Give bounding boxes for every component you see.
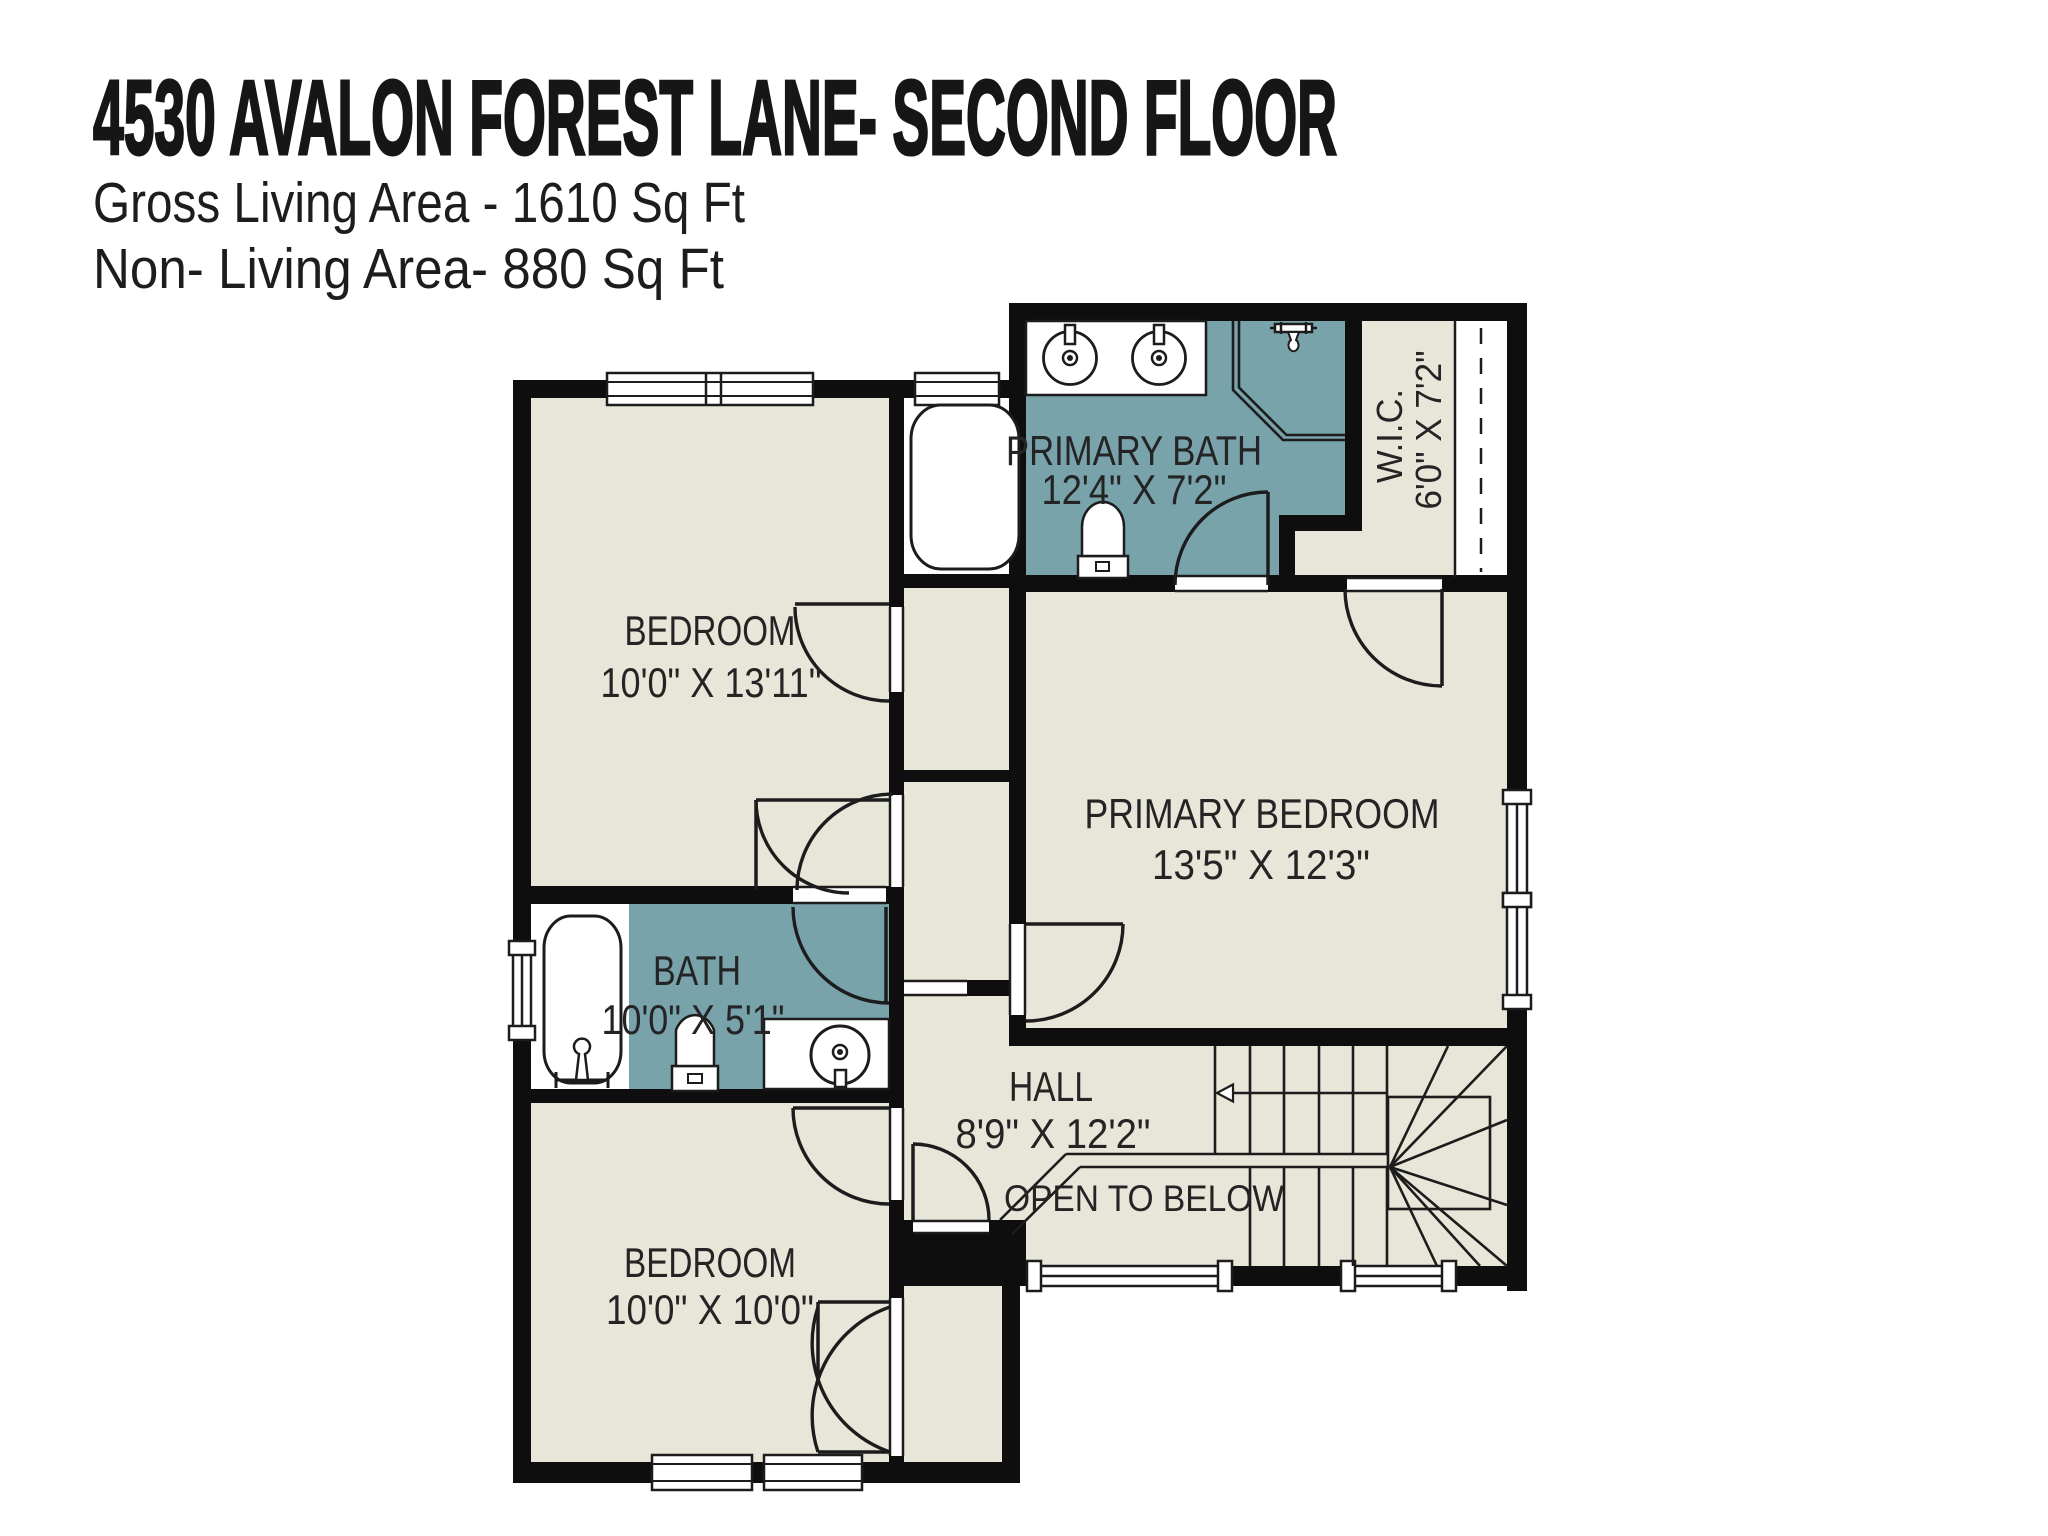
- svg-text:OPEN TO BELOW: OPEN TO BELOW: [1004, 1178, 1284, 1219]
- svg-text:12'4" X 7'2": 12'4" X 7'2": [1042, 466, 1227, 513]
- svg-text:BATH: BATH: [653, 947, 741, 994]
- svg-text:6'0" X 7'2": 6'0" X 7'2": [1408, 351, 1449, 510]
- svg-text:10'0" X 5'1": 10'0" X 5'1": [602, 996, 785, 1043]
- svg-text:13'5" X 12'3": 13'5" X 12'3": [1152, 841, 1370, 888]
- svg-text:8'9" X 12'2": 8'9" X 12'2": [956, 1110, 1151, 1157]
- svg-text:PRIMARY BEDROOM: PRIMARY BEDROOM: [1085, 790, 1440, 837]
- svg-text:W.I.C.: W.I.C.: [1369, 389, 1410, 483]
- svg-text:BEDROOM: BEDROOM: [625, 607, 796, 654]
- svg-text:Non- Living Area- 880 Sq Ft: Non- Living Area- 880 Sq Ft: [93, 237, 724, 301]
- svg-text:10'0" X 10'0": 10'0" X 10'0": [606, 1286, 814, 1333]
- svg-text:BEDROOM: BEDROOM: [624, 1239, 796, 1286]
- svg-text:4530 AVALON FOREST LANE- SECON: 4530 AVALON FOREST LANE- SECOND FLOOR: [93, 59, 1337, 177]
- svg-text:10'0" X 13'11": 10'0" X 13'11": [601, 659, 822, 706]
- svg-text:HALL: HALL: [1009, 1063, 1093, 1110]
- svg-text:Gross Living Area - 1610 Sq Ft: Gross Living Area - 1610 Sq Ft: [93, 171, 745, 235]
